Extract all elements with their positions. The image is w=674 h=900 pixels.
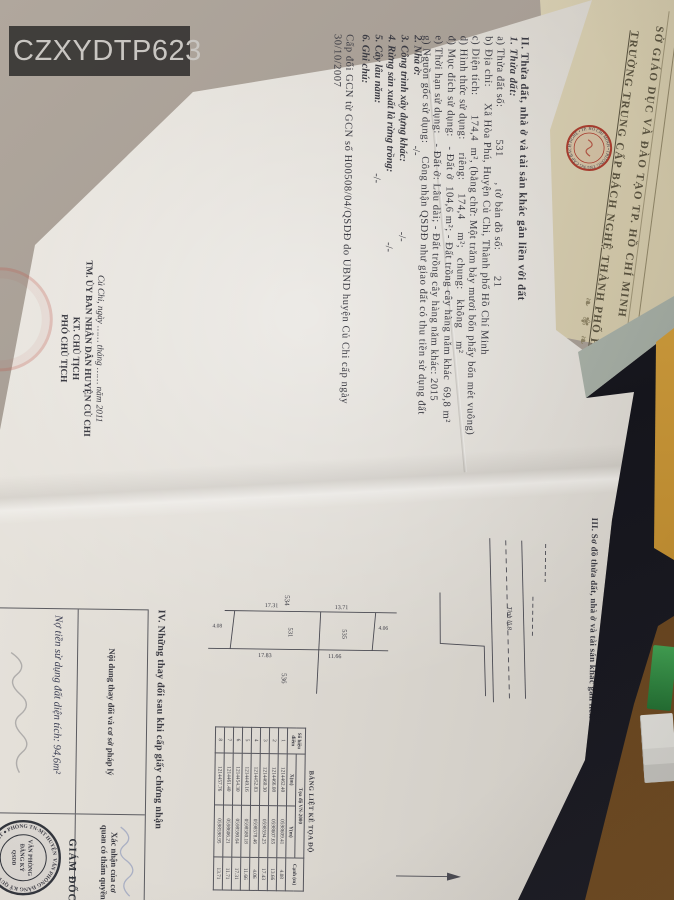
coord-cell: 13.66	[267, 858, 276, 891]
coord-cell: 4.06	[249, 857, 258, 890]
none-mark: -/-	[410, 76, 422, 156]
col-edge-header: Cạnh (m)	[285, 858, 303, 891]
road-edge-line-1	[520, 541, 528, 699]
neighbor-plot-534: 534	[283, 595, 291, 606]
boundary-dash-2	[532, 597, 533, 637]
coord-cell: 1214461.40	[224, 753, 234, 805]
coord-cell: 1214454.30	[233, 753, 243, 805]
col-y-header: Y(m)	[286, 806, 296, 858]
house-label: 2. Nhà ở:	[411, 35, 423, 76]
coord-cell: 4.08	[276, 858, 285, 891]
plot-edge-left	[225, 610, 397, 612]
coord-cell: 3	[260, 728, 269, 754]
neighbor-boundary-step	[439, 593, 487, 697]
none-mark: -/-	[396, 162, 408, 242]
coord-cell: 4	[251, 727, 260, 753]
forest-label: 4. Rừng sản xuất là rừng trồng:	[384, 35, 397, 173]
dim-11-66: 11.66	[328, 654, 341, 660]
coordinate-table: Số hiệu điểm Tọa độ VN-2000 Cạnh (m) X(m…	[213, 726, 306, 891]
coord-cell: 17.43	[258, 858, 267, 891]
coord-table-body: 11214462.400598609.414.0821214466.080598…	[213, 727, 287, 891]
coord-cell: 17.31	[231, 857, 240, 890]
coord-cell: 8	[215, 727, 224, 753]
coord-cell: 7	[224, 727, 233, 753]
registry-stamp-line3: QSDĐ	[10, 850, 16, 865]
watermark-label: CZXYDTP623	[9, 26, 190, 76]
coord-cell: 1	[278, 728, 287, 754]
coord-cell: 11.71	[222, 857, 231, 890]
none-mark: -/-	[371, 103, 383, 183]
sections-3-to-6-block: 2. Nhà ở:-/- 3. Công trình xây dựng khác…	[356, 34, 424, 252]
coord-cell: 0598607.65	[268, 805, 278, 857]
col-x-header: X(m)	[286, 754, 296, 806]
coord-cell: 13.71	[213, 857, 222, 890]
perennial-label: 5. Cây lâu năm:	[372, 35, 384, 104]
section-2-block: II. Thửa đất, nhà ở và tài sản khác gắn …	[414, 35, 531, 436]
dim-17-83: 17.83	[258, 653, 272, 659]
coord-cell: 0598580.18	[241, 805, 251, 857]
changes-col1-header: Nội dung thay đổi và cơ sở pháp lý	[75, 609, 148, 814]
boundary-dash-1	[545, 544, 546, 582]
coord-cell: 0598578.46	[250, 805, 260, 857]
changes-col-content: Nội dung thay đổi và cơ sở pháp lý Nợ ti…	[0, 608, 148, 815]
coord-cell: 0598598.95	[214, 805, 224, 857]
dim-4-08: 4.08	[212, 623, 222, 629]
road-label: Tỉnh lộ 8	[505, 606, 512, 630]
plot-535-label: 535	[340, 629, 347, 639]
plot-edge-right	[208, 648, 388, 651]
coord-cell: 1214449.16	[242, 753, 252, 805]
coord-cell: 0598594.25	[259, 805, 269, 857]
north-arrow-shaft	[396, 876, 454, 877]
neighbor-plot-536: 536	[280, 673, 288, 684]
land-fee-debt-entry: Nợ tiền sử dụng đất diện tích: 94,6m²	[50, 615, 63, 774]
watermark-text: CZXYDTP623	[13, 35, 202, 68]
coord-cell: 1214462.40	[277, 753, 287, 805]
coord-cell: 1214452.83	[251, 753, 261, 805]
none-mark: -/-	[383, 172, 395, 252]
road-edge-line-2	[487, 538, 495, 702]
coord-cell: 0598609.41	[277, 806, 287, 858]
photo-of-land-certificate: SỞ GIÁO DỤC VÀ ĐÀO TẠO TP. HỒ CHÍ MINH T…	[0, 0, 674, 900]
registry-office-stamp: VĂN PHÒNG ĐĂNG KÝ QUYỀN SỬ DỤNG ĐẤT ● PH…	[0, 817, 64, 898]
dim-17-31: 17.31	[265, 603, 279, 609]
plot-cap-bottom	[230, 611, 235, 649]
col-point-header: Số hiệu điểm	[287, 728, 305, 754]
construction-label: 3. Công trình xây dựng khác:	[397, 35, 410, 162]
plot-cap-top	[372, 613, 376, 651]
certificate-text-layer: II. Thửa đất, nhà ở và tài sản khác gắn …	[0, 10, 623, 900]
director-title: GIÁM ĐỐC	[66, 838, 78, 900]
plot-531-label: 531	[286, 627, 293, 637]
col-group-header: Tọa độ VN-2000	[295, 754, 305, 859]
dim-13-71: 13.71	[335, 605, 349, 611]
coord-cell: 0598606.21	[223, 805, 233, 857]
blue-ink-scribble	[112, 823, 139, 900]
coord-cell: 2	[269, 728, 278, 754]
coord-cell: 1214466.08	[268, 753, 278, 805]
section-4-heading: IV. Những thay đổi sau khi cấp giấy chứn…	[153, 610, 167, 830]
reissue-note: Cấp đổi GCN từ GCN số H00508/04/QSDĐ do …	[325, 34, 355, 404]
signature-block: Củ Chi, ngày …… tháng …… năm 2011 TM. ỦY…	[57, 234, 108, 463]
dim-4-06: 4.06	[378, 626, 388, 632]
coordinate-table-block: BẢNG LIỆT KÊ TỌA ĐỘ Số hiệu điểm Tọa độ …	[213, 726, 315, 895]
coord-cell: 1214460.30	[259, 753, 269, 805]
north-arrow-head	[447, 873, 461, 881]
plot-divider	[317, 612, 321, 694]
coord-cell: 1214457.76	[215, 753, 225, 805]
faint-red-committee-stamp	[0, 267, 53, 372]
white-box-object	[640, 713, 674, 783]
coord-cell: 11.66	[240, 857, 249, 890]
pencil-scribble	[0, 648, 41, 779]
coord-cell: 5	[242, 727, 251, 753]
coord-cell: 6	[233, 727, 242, 753]
coord-cell: 0598590.64	[232, 805, 242, 857]
